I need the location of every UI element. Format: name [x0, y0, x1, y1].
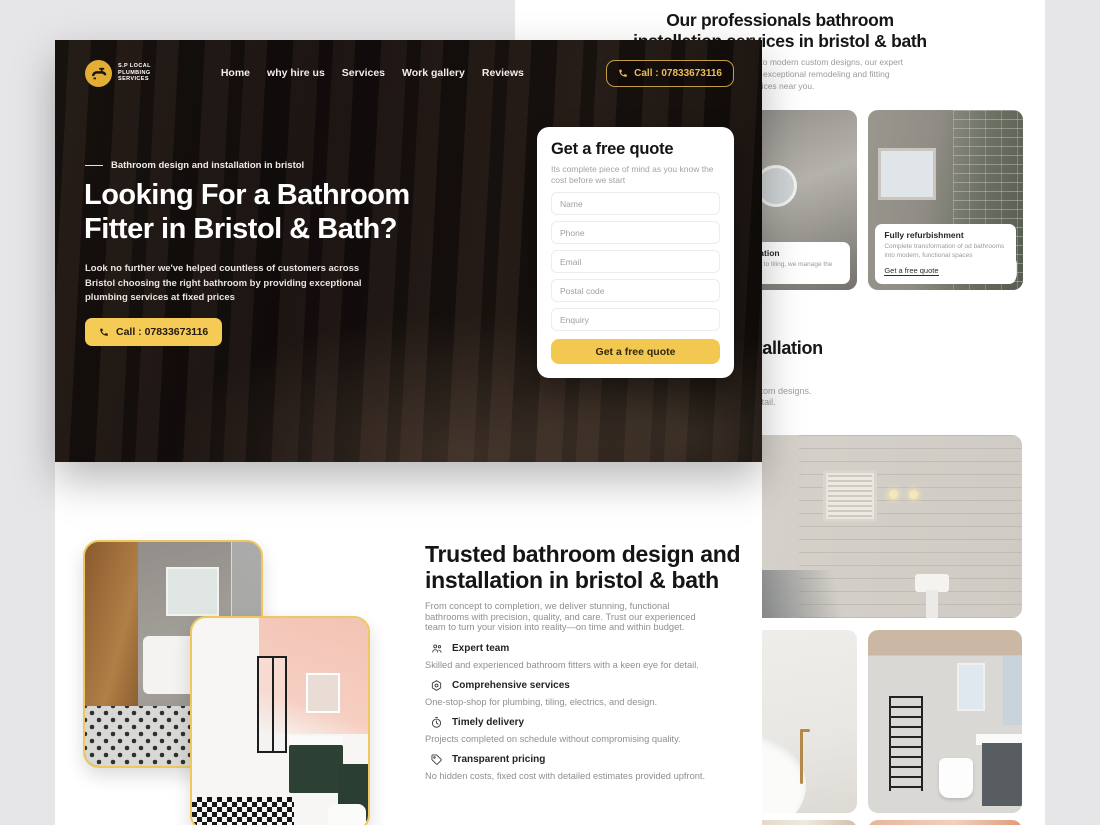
nav-why-hire-us[interactable]: why hire us	[267, 67, 325, 79]
green-vanity-shape	[289, 745, 344, 794]
tag-icon	[430, 753, 443, 766]
hero-header: S.P LOCAL PLUMBING SERVICES Home why hir…	[85, 52, 734, 94]
feature-description: Projects completed on schedule without c…	[425, 734, 743, 744]
gallery-photo-partial	[868, 820, 1022, 825]
feature-description: No hidden costs, fixed cost with detaile…	[425, 771, 743, 781]
window-shutters-shape	[823, 470, 877, 522]
main-nav: Home why hire us Services Work gallery R…	[221, 67, 524, 79]
feature-title: Expert team	[452, 643, 509, 654]
call-button-header[interactable]: Call : 07833673116	[606, 60, 734, 87]
phone-input[interactable]	[551, 221, 720, 244]
window-shape	[166, 567, 219, 616]
nav-home[interactable]: Home	[221, 67, 250, 79]
hero-eyebrow: Bathroom design and installation in bris…	[85, 160, 304, 171]
feature-title: Timely delivery	[452, 717, 524, 728]
logo[interactable]: S.P LOCAL PLUMBING SERVICES	[85, 60, 151, 87]
hero-paragraph: Look no further we've helped countless o…	[85, 262, 385, 306]
mirror-shape	[957, 663, 985, 711]
gold-faucet-shape	[800, 729, 803, 784]
call-button-hero[interactable]: Call : 07833673116	[85, 318, 222, 346]
nav-work-gallery[interactable]: Work gallery	[402, 67, 465, 79]
services-icon	[430, 679, 443, 692]
card-caption: Fully refurbishment Complete transformat…	[875, 224, 1016, 284]
feature-comprehensive-services: Comprehensive services	[425, 679, 743, 692]
postal-code-input[interactable]	[551, 279, 720, 302]
feature-title: Transparent pricing	[452, 754, 545, 765]
toilet-shape	[328, 804, 367, 825]
team-icon	[430, 642, 443, 655]
project-photo-pink-bathroom	[190, 616, 370, 825]
name-input[interactable]	[551, 192, 720, 215]
toilet-shape	[939, 758, 973, 798]
feature-description: Skilled and experienced bathroom fitters…	[425, 660, 743, 670]
quote-submit-button[interactable]: Get a free quote	[551, 339, 720, 364]
nav-reviews[interactable]: Reviews	[482, 67, 524, 79]
checker-floor-shape	[192, 797, 294, 825]
logo-text: S.P LOCAL PLUMBING SERVICES	[118, 63, 151, 83]
get-quote-link[interactable]: Get a free quote	[884, 266, 938, 276]
basin-shape	[289, 736, 344, 744]
quote-form-card: Get a free quote Its complete piece of m…	[537, 127, 734, 378]
phone-icon	[618, 68, 628, 78]
gallery-photo-greyroom	[868, 630, 1022, 813]
feature-transparent-pricing: Transparent pricing	[425, 753, 743, 766]
window-shape	[1003, 656, 1022, 726]
phone-icon	[99, 327, 109, 337]
clock-icon	[430, 716, 443, 729]
feature-description: One-stop-shop for plumbing, tiling, elec…	[425, 697, 743, 707]
dash-decoration	[85, 165, 103, 167]
hero-screenshot: S.P LOCAL PLUMBING SERVICES Home why hir…	[55, 40, 762, 462]
card-title: Fully refurbishment	[884, 230, 1007, 240]
nav-services[interactable]: Services	[342, 67, 385, 79]
vanity-shape	[982, 743, 1022, 805]
feature-timely-delivery: Timely delivery	[425, 716, 743, 729]
card-description: Complete transformation of od bathrooms …	[884, 243, 1007, 260]
quote-form-subtitle: Its complete piece of mind as you know t…	[551, 164, 720, 186]
page-canvas: Our professionals bathroom installation …	[0, 0, 1100, 825]
enquiry-input[interactable]	[551, 308, 720, 331]
quote-form-title: Get a free quote	[551, 140, 720, 159]
hero-heading: Looking For a Bathroom Fitter in Bristol…	[84, 178, 434, 246]
trusted-paragraph: From concept to completion, we deliver s…	[425, 601, 705, 633]
window-shape	[878, 148, 936, 200]
black-radiator-shape	[889, 696, 923, 791]
email-input[interactable]	[551, 250, 720, 273]
trusted-text-column: Trusted bathroom design and installation…	[425, 541, 743, 781]
wall-light-shape	[909, 490, 918, 499]
trusted-section: Trusted bathroom design and installation…	[55, 462, 762, 825]
feature-title: Comprehensive services	[452, 680, 570, 691]
trusted-heading: Trusted bathroom design and installation…	[425, 541, 743, 593]
wall-light-shape	[889, 490, 898, 499]
mirror-shape	[306, 673, 339, 713]
service-card-refurbishment: Fully refurbishment Complete transformat…	[868, 110, 1023, 290]
feature-expert-team: Expert team	[425, 642, 743, 655]
faucet-icon	[85, 60, 112, 87]
shower-frame-shape	[257, 656, 287, 753]
